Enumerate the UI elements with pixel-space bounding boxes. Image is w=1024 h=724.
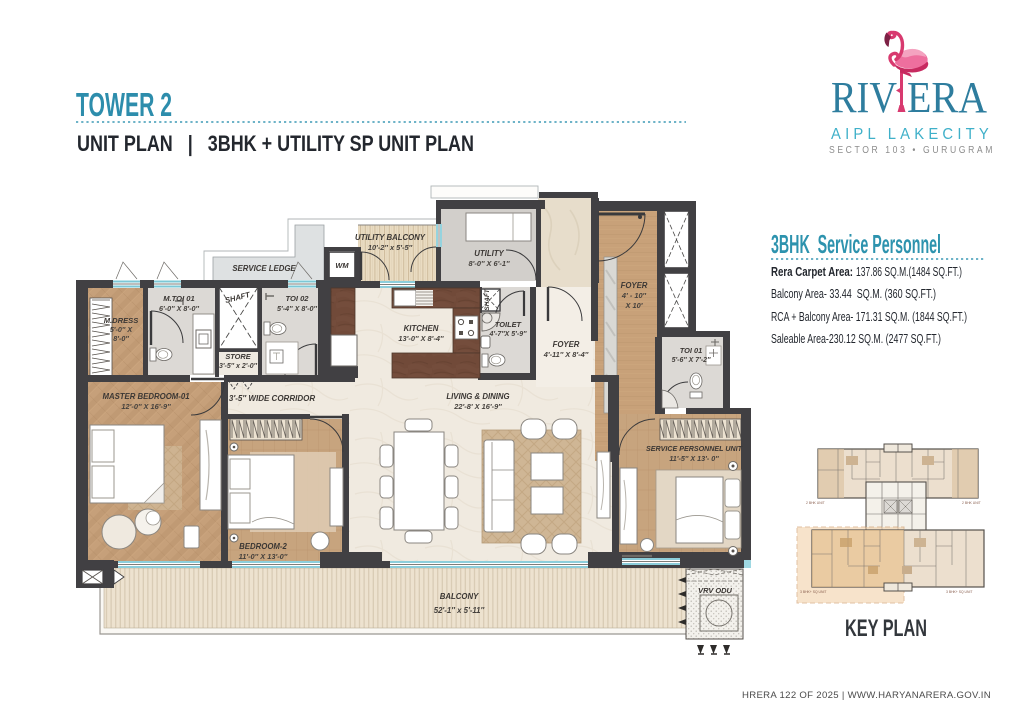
svg-text:TOI 02: TOI 02 [285,294,309,303]
svg-text:AIPL LAKECITY: AIPL LAKECITY [831,126,993,143]
svg-text:6′-0″ X 8′-0″: 6′-0″ X 8′-0″ [159,304,199,313]
svg-text:UTILITY BALCONY: UTILITY BALCONY [355,233,426,242]
svg-text:3′-5″ x 2′-0″: 3′-5″ x 2′-0″ [219,363,258,370]
svg-text:12′-0″ X 16′-9″: 12′-0″ X 16′-9″ [121,402,171,411]
svg-text:BEDROOM-2: BEDROOM-2 [239,542,287,551]
svg-text:2 BHK UNIT: 2 BHK UNIT [962,501,981,505]
svg-text:8′-0″: 8′-0″ [113,334,129,343]
svg-text:4′ - 10″: 4′ - 10″ [621,291,647,300]
svg-text:FOYER: FOYER [553,340,580,349]
svg-text:LIVING & DINING: LIVING & DINING [446,392,509,401]
svg-text:3BHK Service Personnel: 3BHK Service Personnel [771,229,941,259]
svg-text:TOWER 2: TOWER 2 [76,86,172,123]
svg-text:11′-5″ X 13′- 0″: 11′-5″ X 13′- 0″ [669,454,719,463]
svg-text:UNIT PLAN | 3BHK + UTILITY: UNIT PLAN | 3BHK + UTILITY SP UNIT PLAN [77,131,474,156]
svg-text:TOI 01: TOI 01 [680,346,702,355]
svg-text:3 BHK+ SQ UNIT: 3 BHK+ SQ UNIT [946,590,972,594]
svg-text:10′-2″ x 5′-5″: 10′-2″ x 5′-5″ [368,243,413,252]
svg-text:X 10′: X 10′ [625,301,644,310]
svg-text:13′-0″ X 8′-4″: 13′-0″ X 8′-4″ [398,334,444,343]
svg-text:UTILITY: UTILITY [474,249,504,258]
svg-text:SECTOR 103 • GURUGRAM: SECTOR 103 • GURUGRAM [829,145,995,156]
svg-text:2 BHK UNIT: 2 BHK UNIT [806,501,825,505]
svg-text:SERVICE PERSONNEL UNIT: SERVICE PERSONNEL UNIT [646,444,743,453]
svg-text:RIV: RIV [831,73,897,122]
svg-text:FOYER: FOYER [621,281,648,290]
svg-text:VRV ODU: VRV ODU [698,586,732,595]
svg-text:Balcony Area- 33.44 SQ.M. (36: Balcony Area- 33.44 SQ.M. (360 SQ.FT.) [771,287,936,301]
svg-text:M.TOI 01: M.TOI 01 [163,294,195,303]
svg-text:8′-0″ X 6′-1″: 8′-0″ X 6′-1″ [468,259,509,268]
svg-text:11′-0″ X 13′-0″: 11′-0″ X 13′-0″ [239,552,288,561]
svg-text:KEY PLAN: KEY PLAN [845,615,927,642]
svg-text:KITCHEN: KITCHEN [404,324,439,333]
svg-text:3 BHK+ SQ UNIT: 3 BHK+ SQ UNIT [800,590,826,594]
svg-text:5′-0″ X: 5′-0″ X [110,325,134,334]
svg-text:52′-1″ x 5′-11″: 52′-1″ x 5′-11″ [434,606,486,615]
svg-text:3′-5″ WIDE CORRIDOR: 3′-5″ WIDE CORRIDOR [229,394,315,403]
svg-text:SHAFT: SHAFT [484,288,491,310]
svg-text:RCA + Balcony Area- 171.31 SQ.: RCA + Balcony Area- 171.31 SQ.M. (1844 S… [771,310,967,324]
svg-text:TOILET: TOILET [495,320,523,329]
svg-text:SERVICE LEDGE: SERVICE LEDGE [232,264,296,273]
svg-text:Saleable Area-230.12 SQ.M. (24: Saleable Area-230.12 SQ.M. (2477 SQ.FT.) [771,332,941,346]
svg-text:22′-8′ X 16′-9″: 22′-8′ X 16′-9″ [453,402,502,411]
svg-text:4′-11″ X 8′-4″: 4′-11″ X 8′-4″ [543,350,589,359]
svg-text:5′-4″ X 8′-0″: 5′-4″ X 8′-0″ [277,304,317,313]
svg-text:ERA: ERA [907,73,987,122]
svg-text:HRERA 122 OF 2025 | WWW.HARYAN: HRERA 122 OF 2025 | WWW.HARYANARERA.GOV.… [742,690,991,701]
svg-text:137.86 SQ.M.(1484 SQ.FT.): 137.86 SQ.M.(1484 SQ.FT.) [856,265,962,279]
svg-text:BALCONY: BALCONY [440,592,479,601]
svg-text:4′-7″X 5′-9″: 4′-7″X 5′-9″ [489,331,528,338]
svg-text:MASTER BEDROOM-01: MASTER BEDROOM-01 [102,392,189,401]
svg-text:5′-6″ X 7′-2″: 5′-6″ X 7′-2″ [672,357,712,364]
svg-text:Rera Carpet Area:: Rera Carpet Area: [771,265,853,279]
svg-text:STORE: STORE [225,352,251,361]
svg-text:M.DRESS: M.DRESS [104,316,139,325]
svg-text:WM: WM [335,261,349,270]
